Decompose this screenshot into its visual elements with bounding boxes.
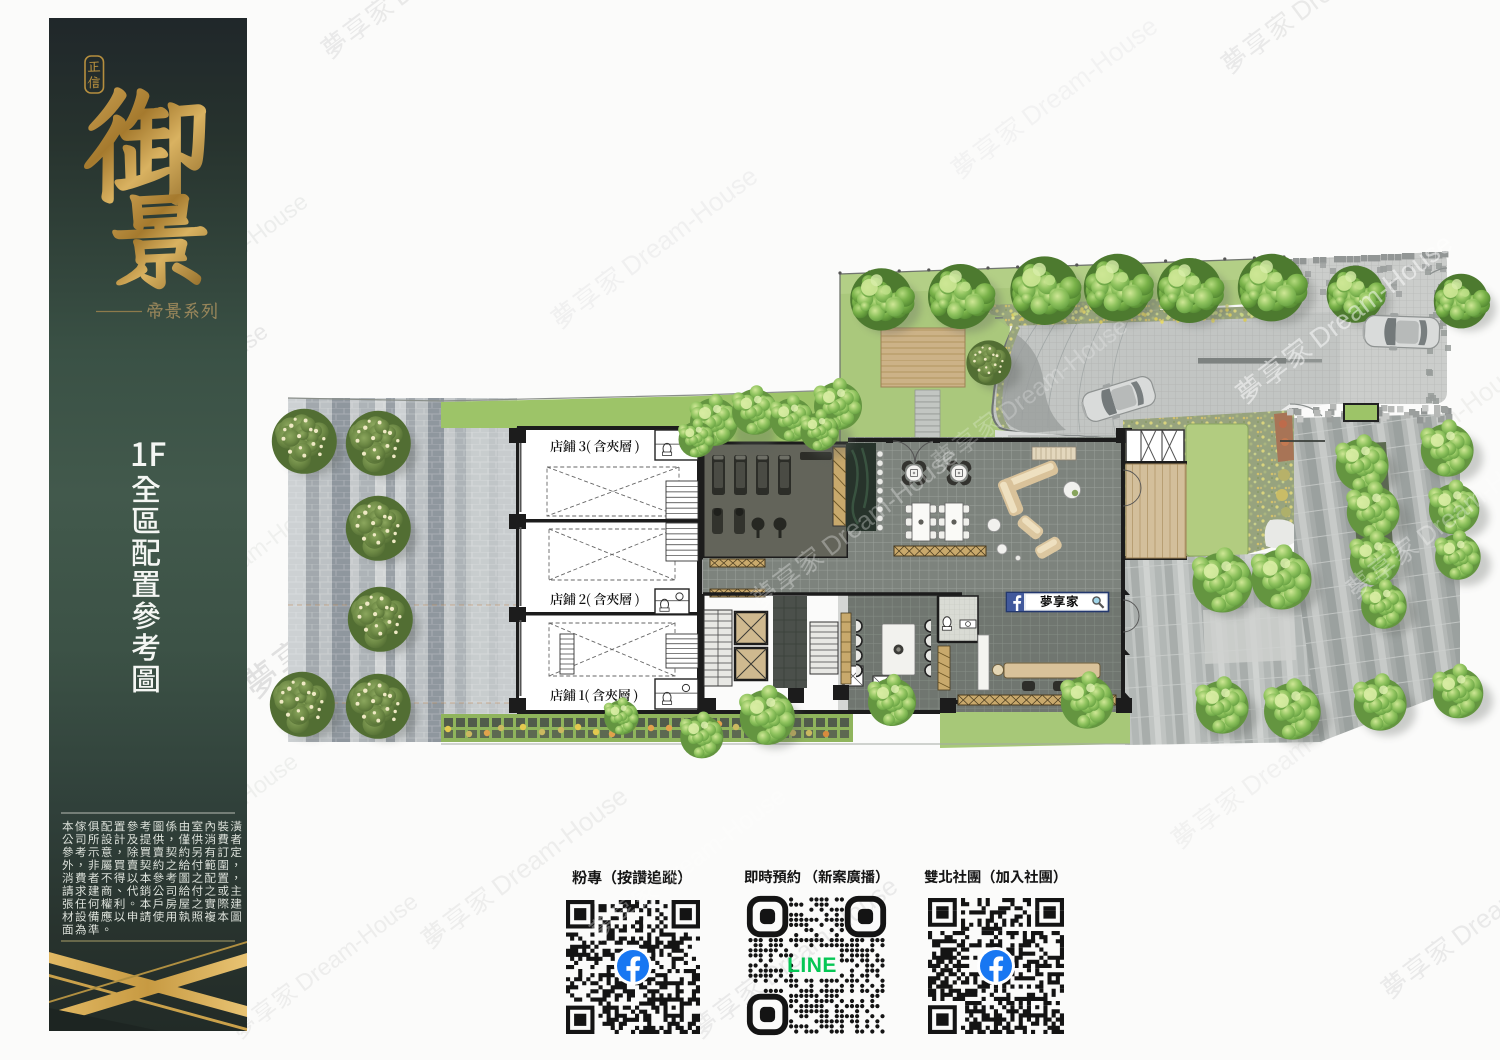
svg-text:LINE: LINE (787, 954, 837, 977)
